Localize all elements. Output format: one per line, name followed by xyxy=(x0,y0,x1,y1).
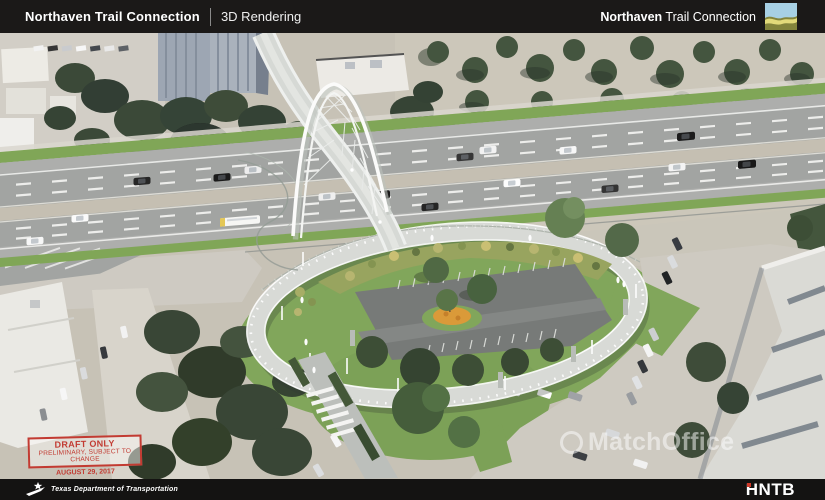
footer-bar: Texas Department of Transportation HNTB xyxy=(0,479,825,500)
brand-title-rest: Trail Connection xyxy=(662,10,756,24)
hntb-wordmark: HNTB xyxy=(746,480,795,499)
header-bar: Northaven Trail Connection 3D Rendering … xyxy=(0,0,825,33)
brand-title-bold: Northaven xyxy=(600,10,662,24)
presentation-slide: Northaven Trail Connection 3D Rendering … xyxy=(0,0,825,500)
atmosphere-overlay xyxy=(0,33,825,479)
title-divider xyxy=(210,8,211,26)
trail-landscape-logo-icon xyxy=(765,3,797,30)
draft-stamp-line2: PRELIMINARY, SUBJECT TO CHANGE xyxy=(32,448,138,465)
brand-title: Northaven Trail Connection xyxy=(600,10,756,24)
txdot-wordmark: Texas Department of Transportation xyxy=(51,486,178,493)
view-label: 3D Rendering xyxy=(221,9,301,24)
watermark-text: MatchOffice xyxy=(588,428,734,457)
txdot-flag-star-icon xyxy=(24,482,48,498)
hntb-logo: HNTB xyxy=(746,481,795,498)
watermark: MatchOffice xyxy=(560,428,734,457)
draft-stamp-box: DRAFT ONLY PRELIMINARY, SUBJECT TO CHANG… xyxy=(27,435,142,469)
watermark-ring-icon xyxy=(560,431,583,454)
txdot-logo: Texas Department of Transportation xyxy=(24,482,178,498)
rendering-canvas xyxy=(0,33,825,479)
draft-stamp: DRAFT ONLY PRELIMINARY, SUBJECT TO CHANG… xyxy=(27,435,142,478)
page-title: Northaven Trail Connection xyxy=(25,9,200,24)
hntb-red-square xyxy=(747,483,751,487)
